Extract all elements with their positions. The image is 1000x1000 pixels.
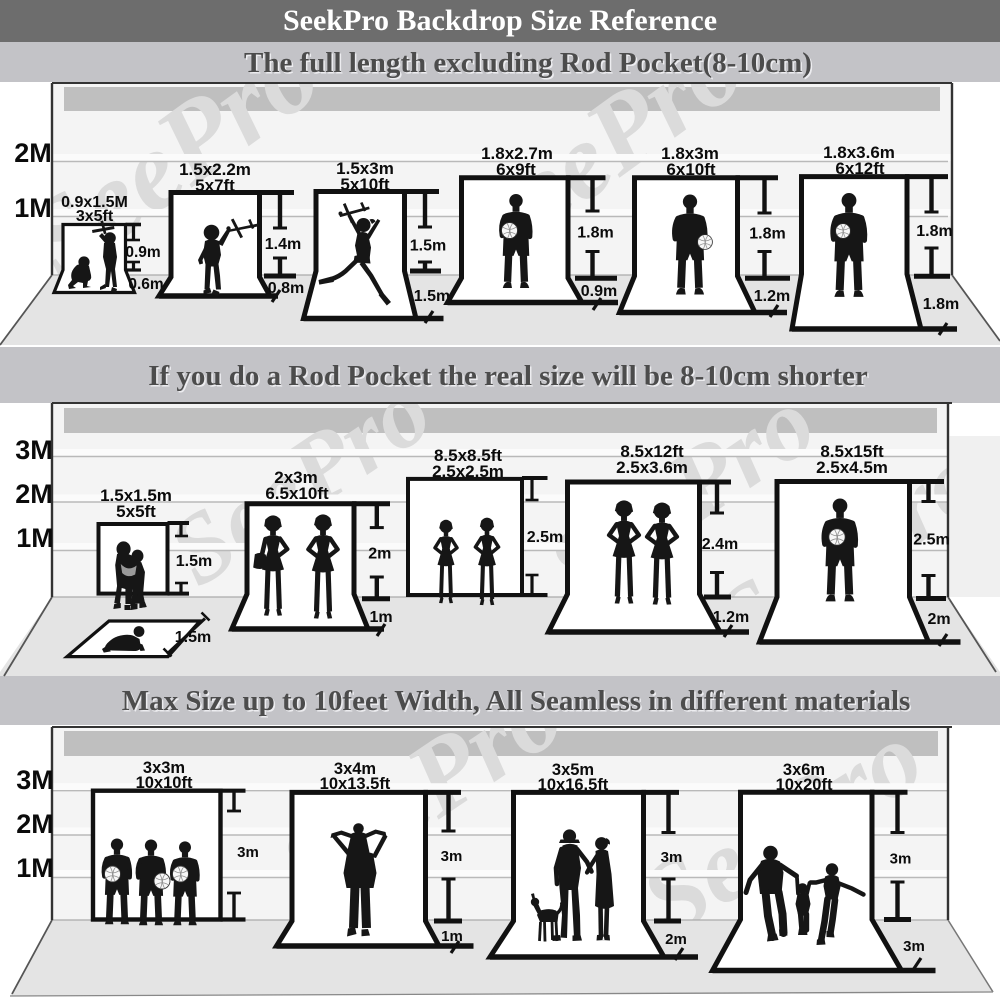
- svg-text:5x10ft: 5x10ft: [340, 175, 389, 194]
- svg-text:2M: 2M: [14, 138, 52, 168]
- svg-text:6x10ft: 6x10ft: [666, 160, 715, 179]
- svg-text:2.5x3.6m: 2.5x3.6m: [616, 458, 688, 477]
- svg-text:1M: 1M: [16, 853, 54, 883]
- svg-text:10x16.5ft: 10x16.5ft: [538, 776, 609, 794]
- svg-text:5x7ft: 5x7ft: [195, 176, 235, 195]
- svg-text:3m: 3m: [237, 844, 259, 861]
- svg-text:3m: 3m: [441, 848, 463, 865]
- svg-text:3x5ft: 3x5ft: [76, 208, 114, 225]
- svg-text:2.5x4.5m: 2.5x4.5m: [816, 458, 888, 477]
- svg-text:3M: 3M: [16, 765, 54, 795]
- svg-text:2.5x2.5m: 2.5x2.5m: [432, 462, 504, 481]
- svg-text:10x13.5ft: 10x13.5ft: [320, 775, 391, 793]
- svg-text:3m: 3m: [903, 938, 925, 955]
- svg-text:1.5m: 1.5m: [410, 238, 446, 255]
- svg-text:The full length excluding Rod: The full length excluding Rod Pocket(8-1…: [244, 47, 812, 79]
- svg-text:3M: 3M: [15, 435, 53, 465]
- svg-text:1m: 1m: [369, 609, 392, 626]
- svg-text:1.5m: 1.5m: [176, 553, 212, 570]
- svg-text:1.5m: 1.5m: [175, 629, 211, 646]
- svg-text:Max Size up to 10feet Width, A: Max Size up to 10feet Width, All Seamles…: [122, 685, 911, 717]
- svg-text:1M: 1M: [16, 523, 54, 553]
- svg-text:1.8m: 1.8m: [923, 296, 959, 313]
- svg-text:3m: 3m: [661, 849, 683, 866]
- svg-text:2M: 2M: [15, 479, 53, 509]
- svg-text:1.2m: 1.2m: [754, 288, 790, 305]
- svg-text:6x12ft: 6x12ft: [835, 159, 884, 178]
- svg-text:1.8m: 1.8m: [916, 223, 952, 240]
- svg-text:0.9m: 0.9m: [125, 244, 160, 261]
- svg-text:0.6m: 0.6m: [128, 276, 163, 293]
- svg-text:1M: 1M: [14, 193, 52, 223]
- svg-text:10x20ft: 10x20ft: [776, 776, 833, 794]
- svg-text:0.8m: 0.8m: [268, 280, 304, 297]
- svg-text:2.5m: 2.5m: [527, 529, 563, 546]
- svg-text:2m: 2m: [927, 611, 950, 628]
- svg-text:2M: 2M: [16, 809, 54, 839]
- svg-text:2.4m: 2.4m: [702, 536, 738, 553]
- svg-text:1.8m: 1.8m: [749, 225, 785, 242]
- svg-text:If you do a Rod Pocket the rea: If you do a Rod Pocket the real size wil…: [148, 360, 868, 392]
- svg-text:1.2m: 1.2m: [713, 609, 749, 626]
- svg-text:5x5ft: 5x5ft: [116, 502, 156, 521]
- svg-text:SeekPro Backdrop Size Referenc: SeekPro Backdrop Size Reference: [283, 4, 717, 37]
- svg-text:6.5x10ft: 6.5x10ft: [265, 484, 329, 503]
- svg-text:1.4m: 1.4m: [265, 236, 301, 253]
- svg-text:2m: 2m: [368, 545, 391, 562]
- svg-text:0.9m: 0.9m: [581, 283, 617, 300]
- svg-text:2m: 2m: [665, 931, 687, 948]
- svg-text:6x9ft: 6x9ft: [496, 160, 536, 179]
- svg-text:3m: 3m: [890, 850, 912, 867]
- svg-text:2.5m: 2.5m: [913, 532, 949, 549]
- svg-text:10x10ft: 10x10ft: [136, 774, 193, 792]
- svg-text:1.8m: 1.8m: [577, 224, 613, 241]
